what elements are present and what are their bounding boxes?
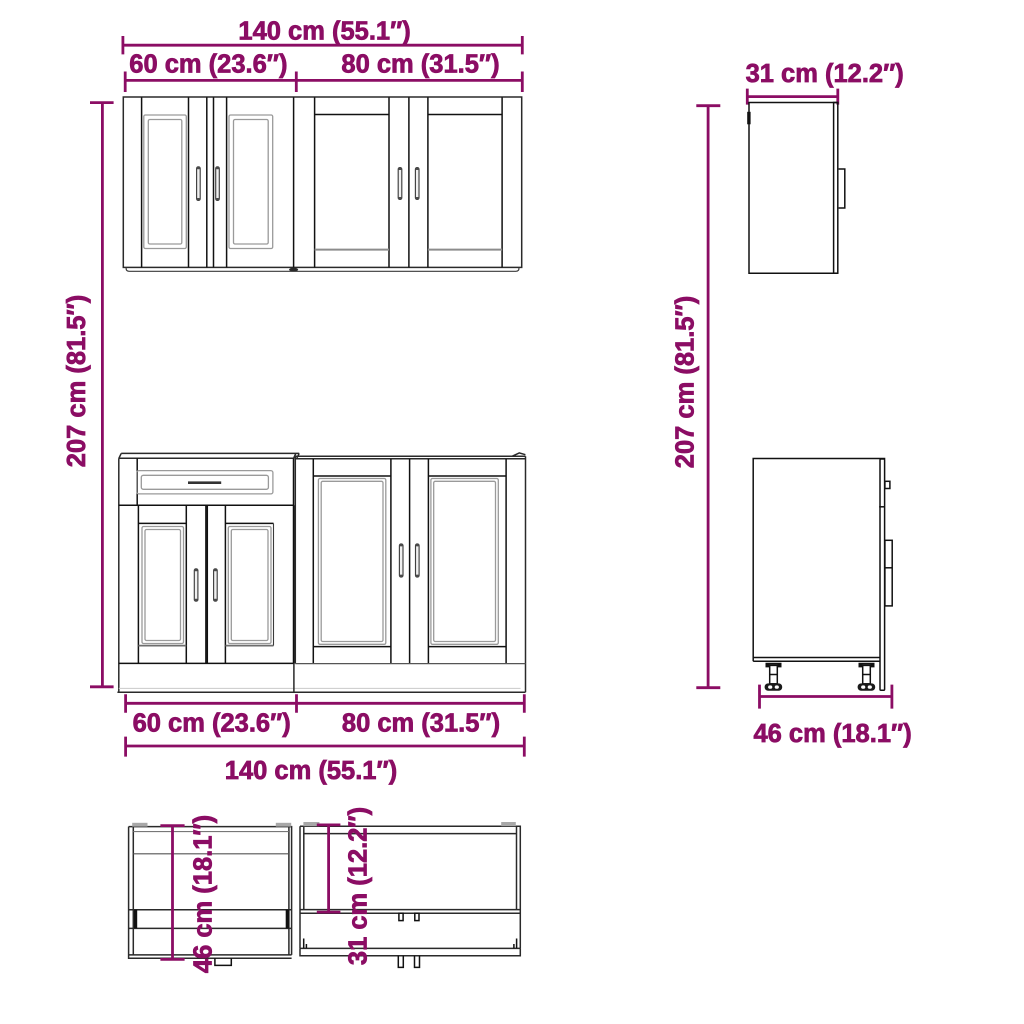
svg-text:207 cm (81.5″): 207 cm (81.5″) — [63, 295, 91, 467]
svg-text:60 cm (23.6″): 60 cm (23.6″) — [129, 51, 287, 79]
svg-text:46 cm (18.1″): 46 cm (18.1″) — [189, 815, 217, 973]
svg-text:31 cm (12.2″): 31 cm (12.2″) — [746, 60, 904, 88]
svg-text:80 cm (31.5″): 80 cm (31.5″) — [342, 710, 500, 738]
svg-text:140 cm (55.1″): 140 cm (55.1″) — [238, 18, 410, 46]
svg-text:31 cm (12.2″): 31 cm (12.2″) — [345, 807, 373, 965]
svg-text:207 cm (81.5″): 207 cm (81.5″) — [671, 296, 699, 468]
svg-text:140 cm (55.1″): 140 cm (55.1″) — [225, 757, 397, 785]
svg-text:80 cm (31.5″): 80 cm (31.5″) — [341, 51, 499, 79]
svg-text:60 cm (23.6″): 60 cm (23.6″) — [133, 710, 291, 738]
svg-text:46 cm (18.1″): 46 cm (18.1″) — [753, 720, 911, 748]
